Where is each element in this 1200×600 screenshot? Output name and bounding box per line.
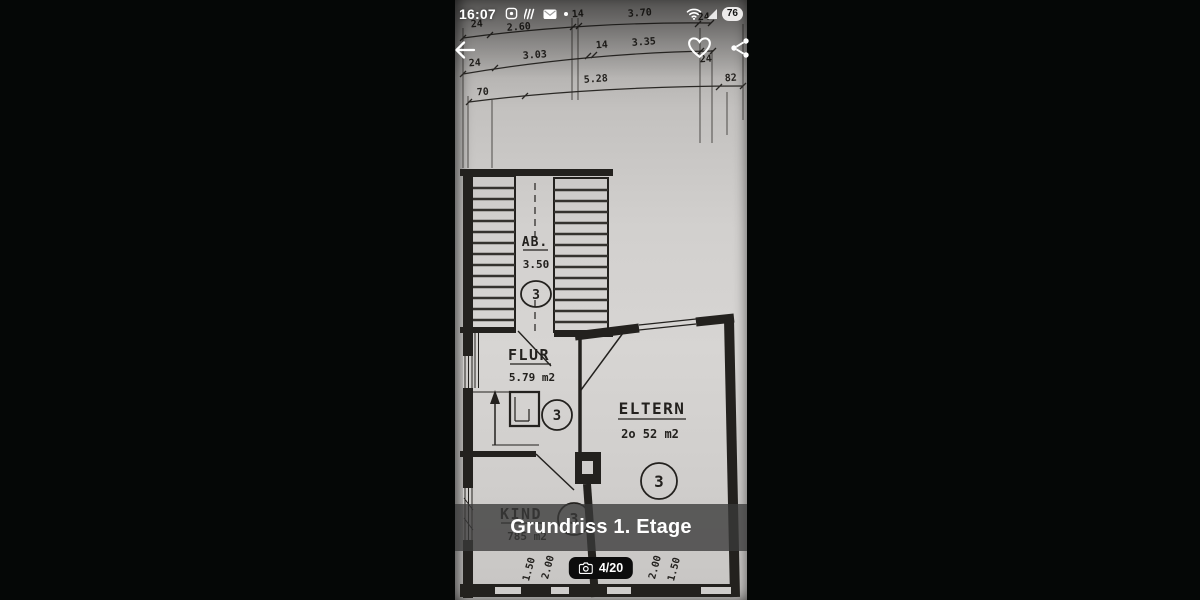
- dim-label: 3.03: [522, 49, 547, 62]
- status-system-icons: 76: [686, 7, 743, 21]
- back-arrow-icon: [452, 38, 478, 62]
- room-area-stairs: 3.50: [523, 258, 550, 271]
- room-label-flur: FLUR: [508, 346, 550, 364]
- dim-label: 3.35: [631, 36, 656, 49]
- signal-icon: [706, 8, 718, 20]
- status-bar: 16:07 76: [455, 0, 747, 27]
- back-button[interactable]: [452, 38, 478, 62]
- battery-indicator: 76: [722, 7, 743, 21]
- photo-caption: Grundriss 1. Etage: [455, 504, 747, 551]
- heart-icon: [686, 35, 713, 60]
- dim-label: 82: [724, 73, 737, 85]
- room-label-stairs: AB.: [522, 235, 548, 250]
- room-area-eltern: 2o 52 m2: [621, 427, 679, 441]
- room-number-flur: 3: [553, 408, 561, 424]
- screen: 24 2.60 14 3.70 24 24 3.03 14 3.35 24 70…: [0, 0, 1200, 600]
- screenshot-icon: [505, 7, 518, 20]
- wifi-icon: [686, 7, 702, 20]
- room-area-flur: 5.79 m2: [509, 371, 555, 384]
- dim-label: 2.00: [540, 554, 557, 580]
- photo-viewer[interactable]: 24 2.60 14 3.70 24 24 3.03 14 3.35 24 70…: [455, 0, 747, 600]
- dim-label: 1.50: [666, 556, 683, 582]
- favorite-button[interactable]: [686, 35, 713, 60]
- slashes-icon: [524, 8, 537, 20]
- room-label-eltern: ELTERN: [619, 399, 686, 418]
- status-notification-icons: [505, 7, 569, 20]
- dim-label: 1.50: [521, 556, 538, 582]
- share-button[interactable]: [729, 37, 751, 59]
- dim-label: 14: [595, 40, 608, 52]
- room-labels: AB. 3.50 3 FLUR 5.79 m2 3 ELTERN 2o 52 m…: [500, 235, 686, 543]
- room-number-stairs: 3: [532, 288, 540, 303]
- status-time: 16:07: [459, 6, 496, 22]
- dim-label: 70: [476, 87, 489, 99]
- room-number-eltern: 3: [654, 472, 664, 491]
- share-icon: [729, 37, 751, 59]
- dim-label: 2.00: [647, 554, 664, 580]
- camera-icon: [579, 562, 593, 574]
- dim-label: 5.28: [583, 73, 608, 86]
- photo-counter-pill: 4/20: [569, 557, 633, 579]
- photo-counter-text: 4/20: [599, 561, 623, 575]
- notification-dot-icon: [563, 11, 569, 17]
- mail-icon: [543, 8, 557, 20]
